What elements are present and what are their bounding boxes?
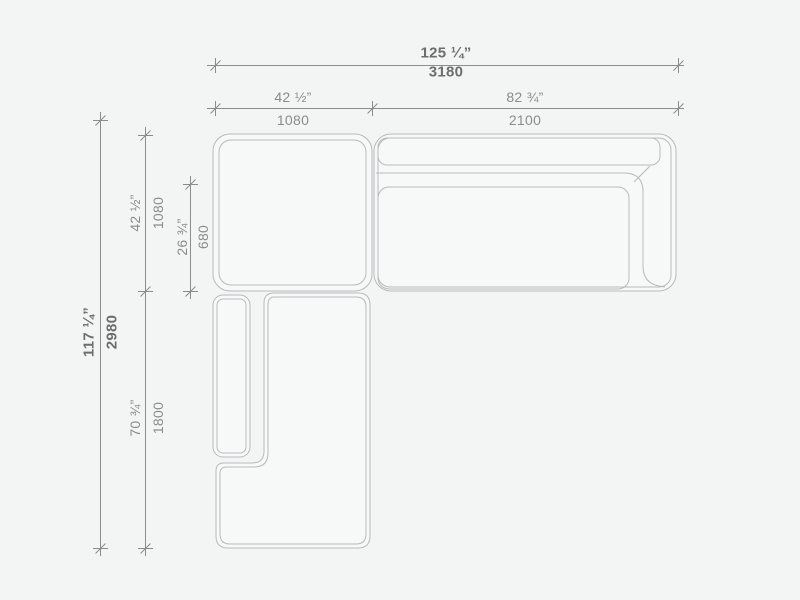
dim-module-a-width-inches: 42 ½” bbox=[274, 90, 311, 104]
dim-module-b-width-inches: 82 ¾” bbox=[506, 90, 543, 104]
dim-module-b-width-mm: 2100 bbox=[509, 113, 541, 127]
drawing-linework bbox=[0, 0, 800, 600]
dim-module-c-length-mm: 1800 bbox=[151, 402, 165, 434]
sofa-dimension-drawing: 125 ¼” 3180 42 ½” 1080 82 ¾” 2100 117 ¼”… bbox=[0, 0, 800, 600]
dimension-lines bbox=[93, 58, 684, 556]
backrest-cushion-left bbox=[213, 295, 250, 457]
module-chaise-left bbox=[213, 293, 370, 548]
dim-overall-depth-inches: 117 ¼” bbox=[82, 307, 97, 357]
module-ottoman bbox=[213, 134, 372, 291]
dim-seat-depth-mm: 680 bbox=[196, 225, 210, 249]
dim-module-c-length-inches: 70 ¾” bbox=[128, 399, 142, 436]
dim-module-a-width-mm: 1080 bbox=[277, 113, 309, 127]
dim-overall-width-mm: 3180 bbox=[429, 65, 464, 80]
dim-line-left-modules bbox=[138, 127, 153, 556]
dim-module-a-depth-inches: 42 ½” bbox=[128, 194, 142, 231]
module-sofa-right bbox=[374, 134, 676, 291]
dim-seat-depth-inches: 26 ¾” bbox=[175, 218, 189, 255]
dim-overall-depth-mm: 2980 bbox=[105, 315, 120, 350]
dim-module-a-depth-mm: 1080 bbox=[151, 197, 165, 229]
sofa-outline bbox=[213, 134, 676, 548]
dim-overall-width-inches: 125 ¼” bbox=[420, 46, 471, 61]
